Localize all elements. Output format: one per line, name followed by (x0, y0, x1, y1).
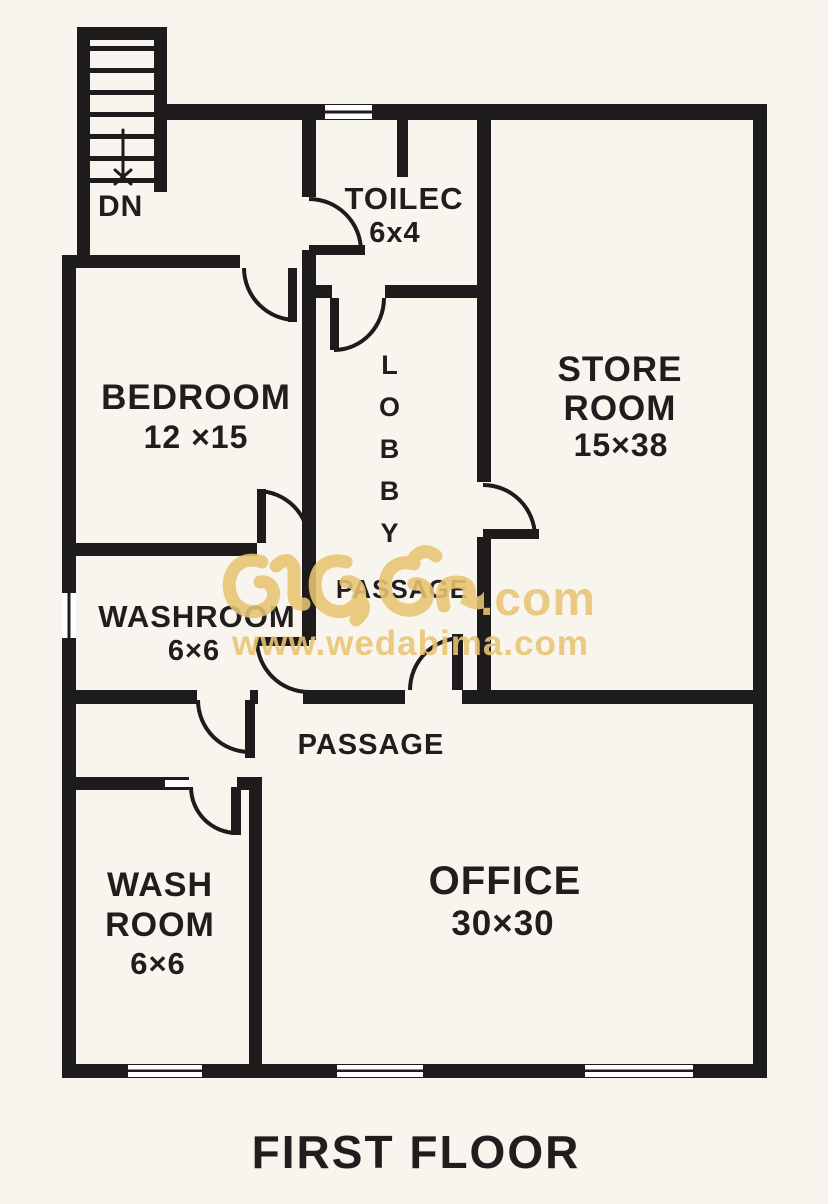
watermark-script-icon (218, 540, 484, 630)
down-arrow-icon (106, 128, 140, 190)
room-label-store-2: ROOM (564, 391, 677, 426)
watermark-domain: .com (480, 572, 596, 627)
door-threshold (165, 777, 189, 790)
passage-bottom-wall (462, 690, 767, 704)
stair-tread (90, 46, 154, 51)
door-leaf (231, 787, 241, 835)
door-arc (196, 700, 250, 754)
wall-left (62, 255, 76, 1078)
toilet-partition-wall (397, 120, 408, 177)
room-label-office: OFFICE (429, 861, 582, 901)
door-leaf (309, 245, 365, 255)
window-icon (128, 1065, 202, 1077)
storeroom-left-wall (477, 120, 491, 482)
room-label-store-1: STORE (558, 352, 683, 387)
room-dims-washroom: 6×6 (168, 637, 220, 666)
window-icon (585, 1065, 693, 1077)
room-dims-toilet: 6x4 (369, 219, 420, 248)
door-leaf (483, 529, 539, 539)
watermark-url: www.wedabima.com (232, 624, 589, 664)
stair-wall-left (77, 27, 90, 262)
bedroom-top-wall (62, 255, 240, 268)
floor-plan: DN TOILEC (0, 0, 828, 1204)
stair-tread (90, 112, 154, 117)
window-icon (325, 105, 372, 119)
room-label-lobby: LOBBY (376, 350, 403, 560)
passage-bottom-wall (303, 690, 405, 704)
door-leaf (245, 700, 255, 758)
stair-tread (90, 68, 154, 73)
toilet-left-wall (302, 120, 316, 197)
washroom2-right-wall (249, 777, 262, 1064)
stairs-dn-label: DN (98, 192, 143, 222)
door-leaf (330, 298, 339, 350)
room-label-bedroom: BEDROOM (101, 380, 291, 415)
passage-bottom-wall (62, 690, 197, 704)
window-icon (337, 1065, 423, 1077)
room-dims-store: 15×38 (574, 429, 669, 461)
room-label-toilet: TOILEC (344, 183, 463, 214)
room-dims-office: 30×30 (451, 906, 554, 941)
stair-tread (90, 90, 154, 95)
bedroom-right-wall (302, 250, 316, 543)
door-arc (189, 787, 237, 835)
door-leaf (288, 268, 297, 322)
room-label-washroom2-1: WASH (107, 868, 213, 902)
door-leaf (257, 489, 266, 543)
room-dims-bedroom: 12 ×15 (144, 421, 249, 453)
room-label-washroom2-2: ROOM (105, 908, 215, 942)
window-icon (62, 593, 76, 638)
toilet-bottom-wall (385, 285, 477, 298)
wall-top (154, 104, 767, 120)
room-dims-washroom2: 6×6 (130, 948, 186, 979)
wall-right (753, 104, 767, 1078)
page-title: FIRST FLOOR (252, 1125, 581, 1179)
door-arc (334, 298, 386, 352)
washroom2-top-wall (62, 777, 165, 790)
passage-lower-label: PASSAGE (298, 731, 445, 760)
